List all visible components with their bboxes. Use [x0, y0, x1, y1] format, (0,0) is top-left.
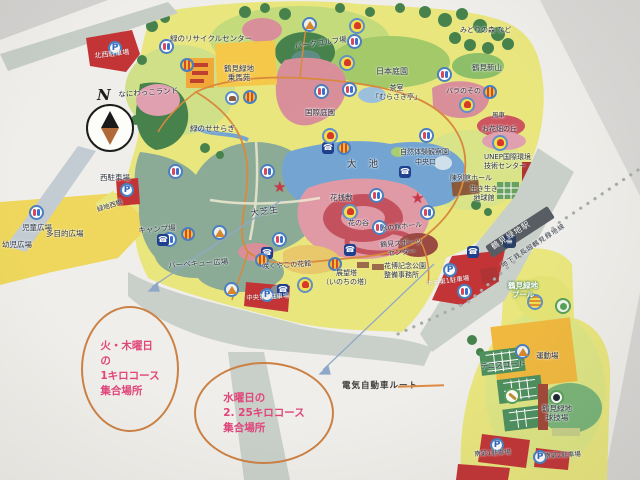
tennis-racket-icon [504, 388, 520, 404]
restroom-icon [29, 205, 44, 220]
map-label-japanese-garden: 日本庭園 [376, 67, 408, 76]
map-label-unep-center: UNEP国際環境 技術センター [484, 153, 531, 171]
restroom-icon [342, 82, 357, 97]
map-label-hanasajiki: 花桟敷 [330, 193, 353, 202]
flower-spot-icon [297, 277, 313, 293]
map-label-big-pond: 大池 [347, 160, 390, 169]
flower-spot-icon [349, 18, 365, 34]
flower-spot-icon [339, 55, 355, 71]
meeting-point-star-icon: ★ [411, 191, 424, 206]
restroom-icon [420, 205, 435, 220]
horse-riding-icon [225, 91, 239, 105]
phone-icon: ☎ [344, 244, 356, 256]
map-label-south-parking-1: 南第1駐車場 [474, 448, 511, 459]
flower-spot-icon [342, 204, 358, 220]
phone-icon: ☎ [467, 246, 479, 258]
map-label-observation-tower: 展望塔 （いのちの塔） [322, 269, 371, 287]
restroom-icon [437, 67, 452, 82]
map-label-sports-center: 鶴見スポーツ センター [380, 238, 423, 259]
annotation-text-wed: 水曜日の 2. 25キロコース 集合場所 [223, 391, 305, 436]
map-label-multipurpose-plaza: 多目的広場 [46, 229, 84, 238]
restroom-icon [314, 84, 329, 99]
annotation-circle-tue-thu-course: 火・木曜日 の 1キロコース 集合場所 [81, 306, 179, 432]
map-label-ikiiki-earth-hall: 生き生き 地球館 [470, 185, 498, 203]
restroom-icon [457, 284, 472, 299]
map-label-south-parking-2: 南第2駐車場 [544, 450, 581, 461]
restroom-icon [260, 164, 275, 179]
flower-spot-icon [459, 97, 475, 113]
parking-icon: P [120, 183, 134, 197]
food-stand-icon [337, 141, 351, 155]
map-label-seseragi: 緑のせせらぎ [190, 124, 235, 133]
tent-icon [515, 344, 530, 359]
map-label-flower-field-hill: お花畑の丘 [482, 125, 517, 134]
compass-rose-icon [86, 104, 134, 152]
map-label-tsurumi-shinzan: 鶴見新山 [472, 63, 502, 72]
map-label-ball-game-field: 鶴見緑地 球技場 [542, 404, 572, 422]
flower-spot-icon [322, 128, 338, 144]
restroom-icon [369, 188, 384, 203]
annotation-circle-wed-course: 水曜日の 2. 25キロコース 集合場所 [194, 362, 334, 464]
tent-icon [212, 225, 227, 240]
map-label-international-garden: 国際庭園 [305, 108, 335, 117]
map-label-horse-park: 鶴見緑地 乗馬苑 [224, 64, 254, 82]
tent-icon [302, 17, 317, 32]
map-label-recycle-center: 緑のリサイクルセンター [170, 34, 252, 43]
food-stand-icon [181, 227, 195, 241]
food-stand-icon [180, 58, 194, 72]
map-label-tea-house: 茶室 「むらさき亭」 [372, 84, 421, 102]
map-label-rose-garden: バラのその [446, 87, 481, 96]
map-label-green-forest: みどりの森 など [460, 26, 511, 35]
map-label-windmill: 風車 [492, 111, 505, 120]
restroom-icon [272, 232, 287, 247]
phone-icon: ☎ [157, 234, 169, 246]
map-label-exhibition-hall: 陳列館ホール [450, 174, 492, 183]
map-label-central-gate: 中央口 [415, 158, 436, 167]
soccer-ball-icon [549, 390, 564, 405]
map-label-toddler-plaza: 幼児広場 [2, 240, 32, 249]
map-label-flower-valley: 花の谷 [348, 219, 369, 228]
food-stand-icon [243, 90, 257, 104]
pool-slider-icon [555, 298, 571, 314]
flower-spot-icon [492, 135, 508, 151]
map-label-pool: 鶴見緑地 プール [508, 281, 538, 299]
restroom-icon [347, 34, 362, 49]
restroom-icon [168, 164, 183, 179]
phone-icon: ☎ [399, 166, 411, 178]
annotation-text-tue-thu: 火・木曜日 の 1キロコース 集合場所 [100, 339, 159, 399]
food-stand-icon [483, 85, 497, 99]
map-label-sports-ground: 運動場 [536, 351, 559, 360]
park-map-photo: ☎ ☎ ☎ ☎ ☎ ☎ ☎ ≡ P P P P P P ★ ★ N 北西駐車場 … [0, 0, 640, 480]
meeting-point-star-icon: ★ [273, 180, 286, 195]
map-label-park-office: 花博記念公園 整備事務所 [384, 262, 426, 280]
map-label-west-parking: 西駐車場 [100, 173, 130, 182]
tent-icon [224, 282, 239, 297]
map-label-nature-observation: 自然体験観察園 [400, 148, 449, 157]
compass-north-label: N [97, 86, 111, 104]
restroom-icon [419, 128, 434, 143]
